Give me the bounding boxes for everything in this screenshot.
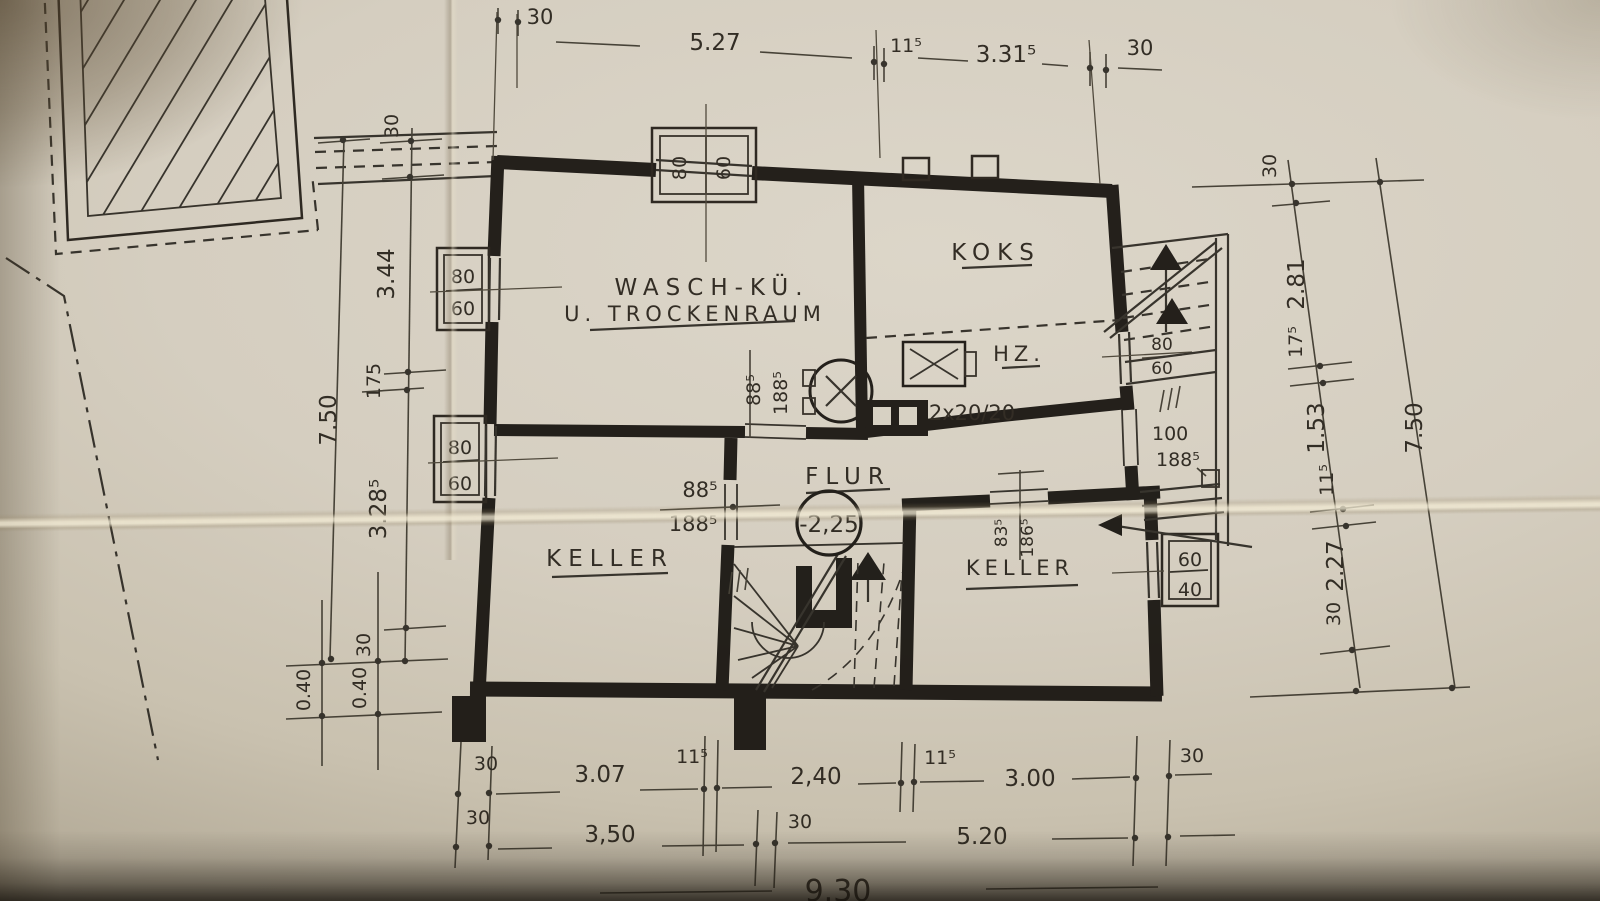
dim-left-5: 30 (353, 633, 375, 657)
window-stair-height: 60 (1151, 359, 1173, 379)
window-right-height: 40 (1178, 579, 1202, 601)
window-right: 60 40 (1112, 534, 1218, 606)
window-left-upper: 80 60 (430, 248, 562, 330)
door-waschkueche-height: 188⁵ (770, 371, 792, 415)
dims-left: 30 3.44 175 7.50 3.28⁵ 30 0.40 0.40 (286, 114, 448, 770)
floor-plan-drawing: 80 60 80 60 80 60 60 40 80 (0, 0, 1600, 901)
dim-right-1: 2.81 (1284, 258, 1310, 309)
door-exterior-height: 188⁵ (1156, 449, 1200, 471)
dims-top: 30 5.27 11⁵ 3.31⁵ 30 (493, 5, 1162, 184)
koks-hz-divider (866, 320, 1120, 338)
dim-right-7: 7.50 (1402, 402, 1428, 453)
dim-right-4: 11⁵ (1316, 464, 1338, 496)
dim-b2-3: 5.20 (956, 824, 1007, 850)
dim-left-6: 0.40 (293, 669, 315, 711)
dim-b1-1: 3.07 (574, 762, 625, 788)
dim-b2-1: 3,50 (584, 822, 635, 848)
window-top: 80 60 (652, 104, 756, 262)
dims-bottom: 30 3.07 11⁵ 2,40 11⁵ 3.00 30 30 3,50 30 … (453, 736, 1235, 901)
dim-right-3: 1.53 (1304, 402, 1330, 453)
dim-right-0: 30 (1259, 154, 1281, 178)
window-top-height: 60 (713, 156, 735, 180)
dim-top-4: 30 (1127, 36, 1154, 60)
room-koks: KOKS (951, 240, 1041, 266)
chimney-flue-2 (898, 406, 918, 426)
room-flur: FLUR (805, 464, 891, 490)
wall-pier-center (734, 698, 766, 750)
dim-right-2: 17⁵ (1285, 326, 1307, 358)
door-keller-left: 88⁵ 188⁵ (660, 478, 780, 540)
property-line (6, 258, 158, 760)
dim-left-1: 3.44 (374, 248, 400, 299)
door-exterior-width: 100 (1152, 423, 1188, 445)
dim-b3-0: 9.30 (805, 874, 872, 901)
door-waschkueche-width: 88⁵ (743, 374, 765, 406)
chimney-label: 2x20/20 (929, 401, 1015, 425)
dim-left-0: 30 (381, 114, 403, 138)
dim-b1-5: 3.00 (1004, 766, 1055, 792)
door-keller-right: 83⁵ 186⁵ (990, 470, 1048, 560)
dim-left-3: 7.50 (316, 394, 342, 445)
door-keller-right-height: 186⁵ (1018, 518, 1038, 557)
wall-pier-left (452, 696, 486, 742)
dim-top-1: 5.27 (689, 30, 740, 56)
dim-left-7: 0.40 (349, 667, 371, 709)
stair-down-arrow (1098, 514, 1122, 536)
window-stair-width: 80 (1151, 335, 1173, 355)
stair-arrowhead-1 (1150, 244, 1182, 270)
dim-b2-2: 30 (788, 811, 812, 833)
room-waschkueche-line1: WASCH-KÜ. (614, 273, 809, 301)
boiler-hz (903, 342, 976, 386)
window-top-width: 80 (669, 156, 691, 180)
window-left-upper-height: 60 (451, 298, 475, 320)
room-keller-right: KELLER (966, 556, 1074, 580)
dim-b1-0: 30 (474, 753, 498, 775)
door-keller-left-width: 88⁵ (682, 478, 717, 502)
stair-arrowhead-2 (1156, 298, 1188, 324)
window-left-lower-width: 80 (448, 437, 472, 459)
dim-b1-4: 11⁵ (924, 747, 956, 769)
dim-b1-6: 30 (1180, 745, 1204, 767)
room-hz: HZ. (993, 342, 1045, 366)
chimney-flue-1 (872, 406, 892, 426)
door-keller-left-height: 188⁵ (669, 512, 718, 536)
door-waschkueche: 88⁵ 188⁵ (743, 350, 806, 439)
dim-right-5: 2.27 (1323, 540, 1349, 591)
dim-left-4: 3.28⁵ (366, 479, 392, 539)
interior-stair (729, 543, 904, 692)
chimney-stub-2 (972, 156, 998, 178)
door-keller-right-width: 83⁵ (992, 519, 1012, 547)
dim-top-2: 11⁵ (890, 35, 922, 57)
dim-left-2: 175 (363, 363, 385, 399)
window-left-upper-width: 80 (451, 266, 475, 288)
room-keller-left: KELLER (546, 546, 674, 572)
dim-right-6: 30 (1323, 602, 1345, 626)
dims-right: 30 2.81 17⁵ 1.53 11⁵ 2.27 30 7.50 (1192, 154, 1470, 697)
stair-up-arrow (850, 552, 886, 580)
level-value: -2,25 (799, 512, 859, 538)
dim-b1-3: 2,40 (790, 764, 841, 790)
dim-top-3: 3.31⁵ (976, 42, 1036, 68)
building-walls (452, 156, 1162, 750)
dim-b1-2: 11⁵ (676, 746, 708, 768)
dim-b2-0: 30 (466, 807, 490, 829)
window-right-width: 60 (1178, 549, 1202, 571)
dim-top-0: 30 (527, 5, 554, 29)
window-left-lower-height: 60 (448, 473, 472, 495)
photographed-floor-plan: 80 60 80 60 80 60 60 40 80 (0, 0, 1600, 901)
